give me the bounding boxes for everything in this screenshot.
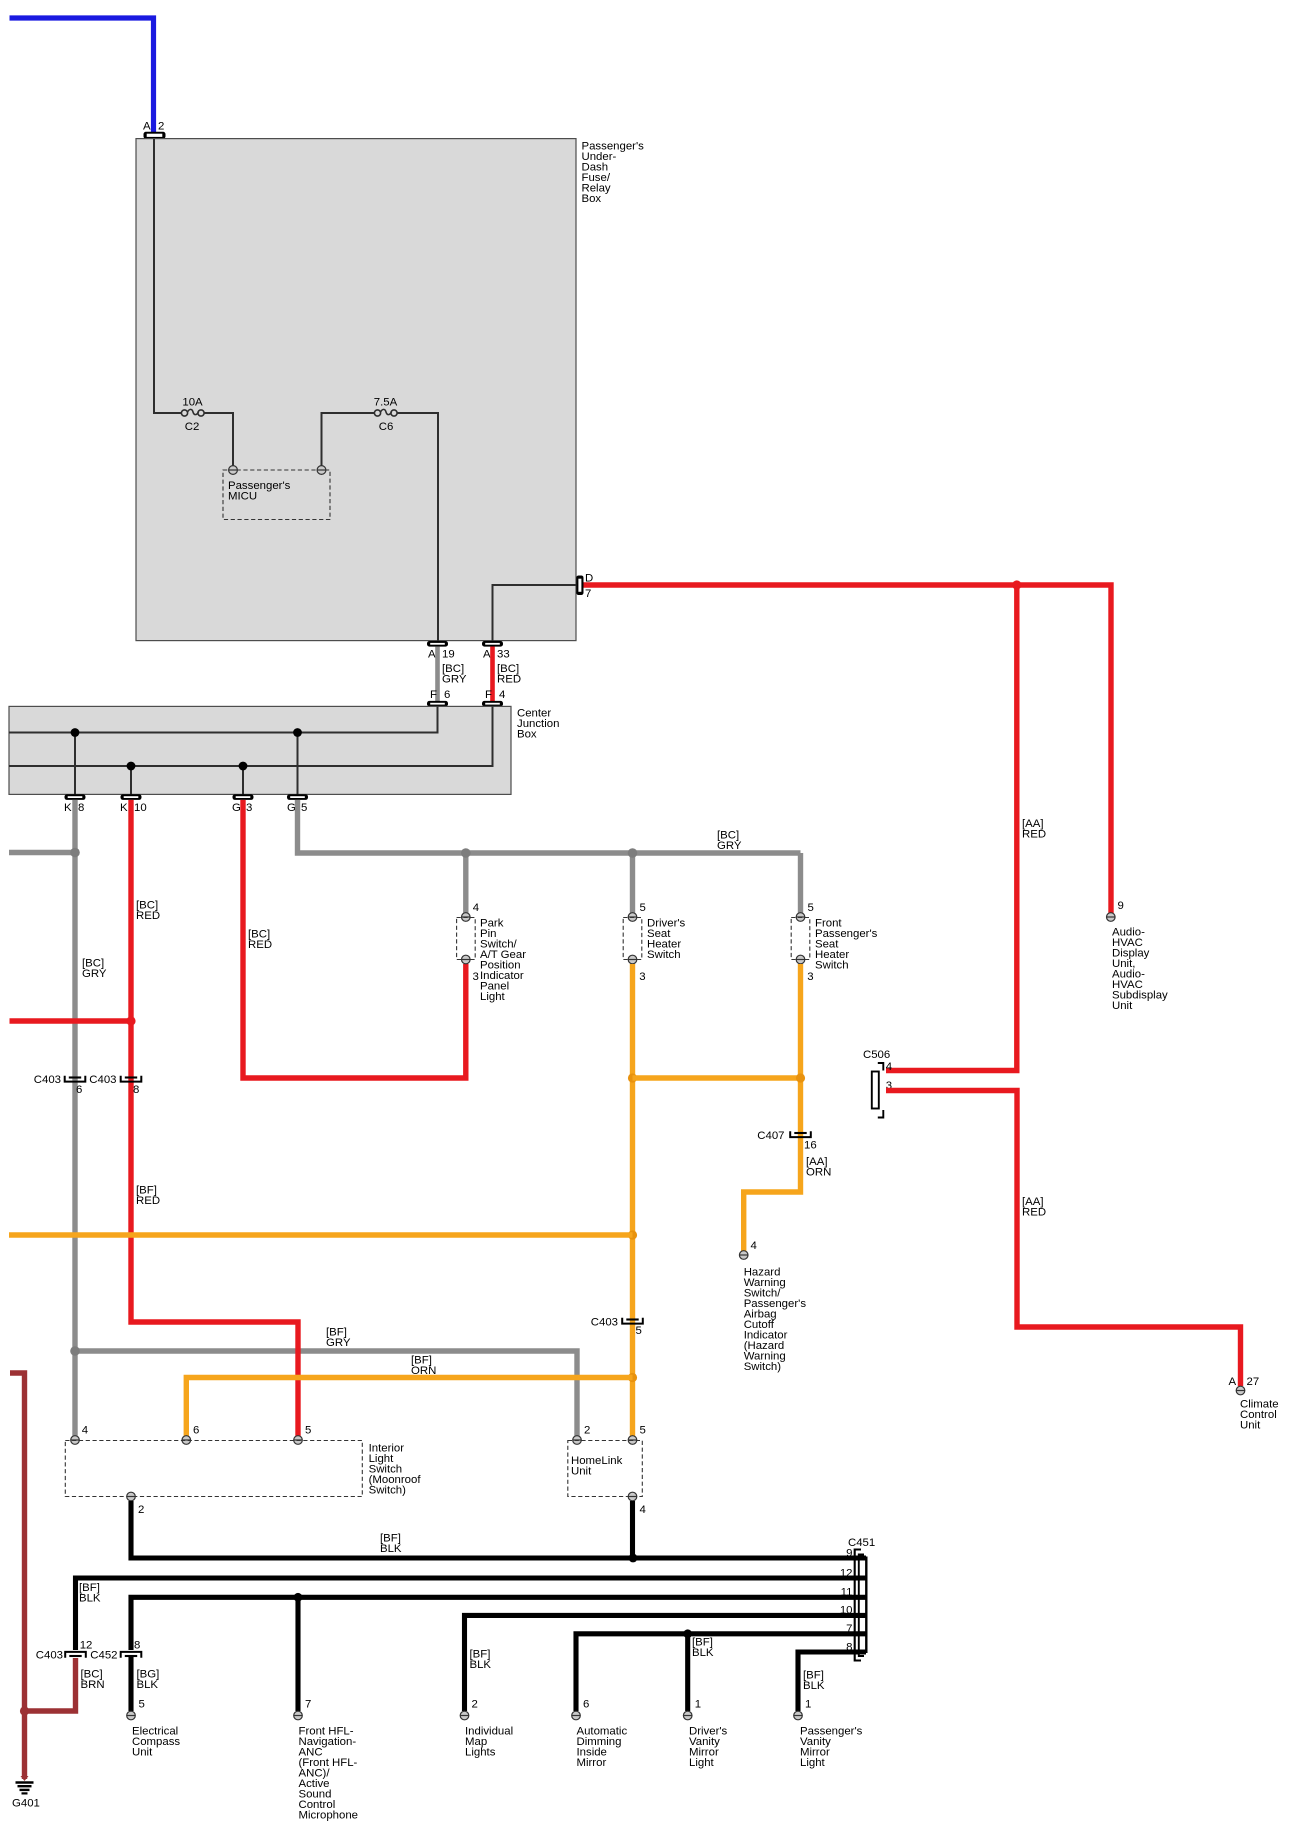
svg-text:10A: 10A	[182, 397, 203, 409]
svg-text:6: 6	[193, 1425, 199, 1437]
svg-text:Light: Light	[800, 1757, 826, 1769]
svg-text:GRY: GRY	[82, 968, 107, 980]
svg-text:BLK: BLK	[803, 1680, 825, 1692]
svg-text:6: 6	[444, 689, 450, 701]
svg-text:Switch: Switch	[815, 960, 849, 972]
svg-text:K: K	[120, 802, 128, 814]
svg-text:Lights: Lights	[465, 1747, 496, 1759]
svg-text:ORN: ORN	[806, 1166, 831, 1178]
svg-text:8: 8	[846, 1641, 852, 1653]
svg-text:Microphone: Microphone	[299, 1810, 359, 1822]
svg-text:5: 5	[640, 902, 646, 914]
svg-text:A: A	[143, 121, 151, 133]
svg-text:7: 7	[585, 588, 591, 600]
svg-text:G: G	[287, 802, 296, 814]
svg-text:2: 2	[158, 121, 164, 133]
svg-text:Mirror: Mirror	[577, 1757, 607, 1769]
svg-text:4: 4	[886, 1061, 892, 1073]
svg-text:F: F	[485, 689, 492, 701]
svg-text:C2: C2	[185, 421, 200, 433]
svg-text:A: A	[428, 649, 436, 661]
svg-text:6: 6	[76, 1084, 82, 1096]
svg-text:Unit: Unit	[132, 1747, 153, 1759]
svg-text:F: F	[430, 689, 437, 701]
svg-text:33: 33	[497, 649, 510, 661]
svg-text:3: 3	[639, 971, 645, 983]
svg-text:RED: RED	[136, 1195, 160, 1207]
svg-text:RED: RED	[136, 910, 160, 922]
svg-text:K: K	[64, 802, 72, 814]
svg-text:5: 5	[636, 1325, 642, 1337]
svg-text:4: 4	[751, 1240, 757, 1252]
svg-text:Light: Light	[480, 991, 506, 1003]
svg-text:3: 3	[473, 971, 479, 983]
svg-text:BRN: BRN	[81, 1679, 105, 1691]
svg-text:1: 1	[805, 1699, 811, 1711]
svg-text:G401: G401	[12, 1798, 40, 1810]
svg-text:4: 4	[82, 1425, 88, 1437]
svg-text:5: 5	[808, 902, 814, 914]
svg-text:11: 11	[841, 1587, 853, 1599]
svg-text:Switch): Switch)	[369, 1485, 407, 1497]
svg-text:5: 5	[139, 1699, 145, 1711]
svg-text:GRY: GRY	[326, 1337, 351, 1349]
svg-text:BLK: BLK	[470, 1659, 492, 1671]
svg-text:12: 12	[840, 1567, 853, 1579]
svg-text:Switch: Switch	[647, 949, 681, 961]
svg-text:BLK: BLK	[380, 1543, 402, 1555]
svg-text:C403: C403	[591, 1317, 618, 1329]
svg-text:8: 8	[78, 802, 84, 814]
svg-text:A: A	[483, 649, 491, 661]
svg-text:GRY: GRY	[442, 674, 467, 686]
svg-text:4: 4	[640, 1504, 646, 1516]
svg-text:8: 8	[134, 1640, 140, 1652]
svg-text:BLK: BLK	[137, 1679, 159, 1691]
svg-text:RED: RED	[1022, 1207, 1046, 1219]
svg-text:6: 6	[583, 1699, 589, 1711]
svg-text:9: 9	[1118, 900, 1124, 912]
svg-text:BLK: BLK	[692, 1647, 714, 1659]
svg-text:1: 1	[695, 1699, 701, 1711]
svg-text:16: 16	[804, 1140, 817, 1152]
svg-text:C403: C403	[89, 1074, 116, 1086]
svg-text:10: 10	[840, 1605, 853, 1617]
svg-text:Unit: Unit	[1112, 1000, 1133, 1012]
svg-text:5: 5	[301, 802, 307, 814]
svg-text:Light: Light	[689, 1757, 715, 1769]
svg-text:Unit: Unit	[1240, 1420, 1261, 1432]
svg-text:5: 5	[640, 1425, 646, 1437]
svg-text:C407: C407	[757, 1130, 784, 1142]
svg-text:BLK: BLK	[79, 1593, 101, 1605]
svg-text:C6: C6	[379, 421, 394, 433]
svg-text:27: 27	[1247, 1376, 1260, 1388]
svg-text:C403: C403	[34, 1074, 61, 1086]
svg-text:C452: C452	[90, 1650, 117, 1662]
svg-text:C506: C506	[863, 1049, 890, 1061]
svg-text:Unit: Unit	[571, 1466, 592, 1478]
svg-text:G: G	[232, 802, 241, 814]
svg-text:Box: Box	[517, 729, 537, 741]
svg-text:7: 7	[846, 1623, 852, 1635]
svg-text:3: 3	[807, 971, 813, 983]
svg-text:Box: Box	[582, 193, 602, 205]
svg-text:8: 8	[133, 1084, 139, 1096]
svg-text:Switch): Switch)	[744, 1361, 782, 1373]
svg-text:MICU: MICU	[228, 491, 257, 503]
svg-text:3: 3	[246, 802, 252, 814]
svg-text:4: 4	[473, 902, 479, 914]
svg-text:4: 4	[499, 689, 505, 701]
svg-text:19: 19	[442, 649, 455, 661]
svg-text:7.5A: 7.5A	[374, 397, 398, 409]
svg-text:9: 9	[846, 1547, 852, 1559]
svg-text:5: 5	[305, 1425, 311, 1437]
svg-text:2: 2	[138, 1504, 144, 1516]
svg-text:C403: C403	[36, 1650, 63, 1662]
svg-text:10: 10	[134, 802, 147, 814]
svg-text:2: 2	[472, 1699, 478, 1711]
svg-text:7: 7	[305, 1699, 311, 1711]
svg-text:2: 2	[584, 1425, 590, 1437]
svg-text:RED: RED	[1022, 829, 1046, 841]
svg-text:GRY: GRY	[717, 840, 742, 852]
svg-text:RED: RED	[248, 939, 272, 951]
svg-text:RED: RED	[497, 674, 521, 686]
svg-text:A: A	[1229, 1376, 1237, 1388]
